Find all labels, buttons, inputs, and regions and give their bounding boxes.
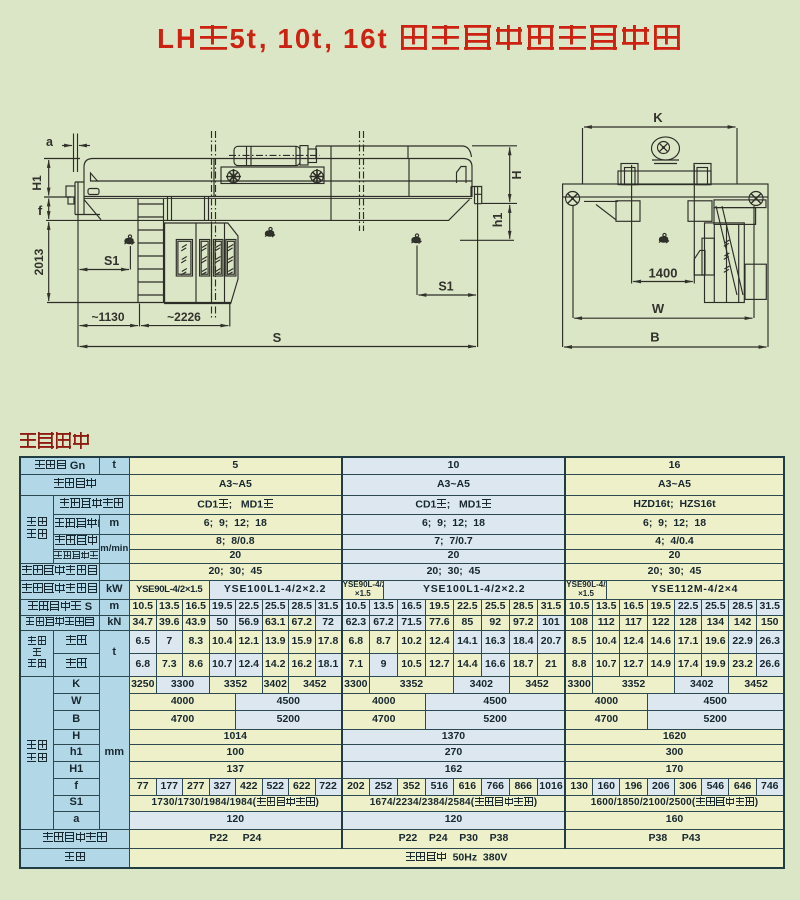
- svg-text:H1: H1: [30, 175, 44, 191]
- svg-text:S1: S1: [104, 254, 119, 268]
- svg-text:S: S: [273, 330, 282, 345]
- svg-text:f: f: [38, 203, 43, 218]
- svg-text:~2226: ~2226: [167, 310, 201, 324]
- svg-text:1400: 1400: [649, 266, 678, 281]
- svg-text:a: a: [46, 135, 54, 149]
- svg-text:h1: h1: [491, 213, 505, 228]
- svg-text:W: W: [652, 301, 665, 316]
- svg-text:2013: 2013: [32, 248, 46, 275]
- svg-text:K: K: [653, 110, 663, 125]
- svg-text:H: H: [510, 170, 524, 179]
- svg-text:S1: S1: [438, 280, 453, 294]
- svg-text:~1130: ~1130: [91, 310, 124, 324]
- svg-text:B: B: [650, 330, 659, 345]
